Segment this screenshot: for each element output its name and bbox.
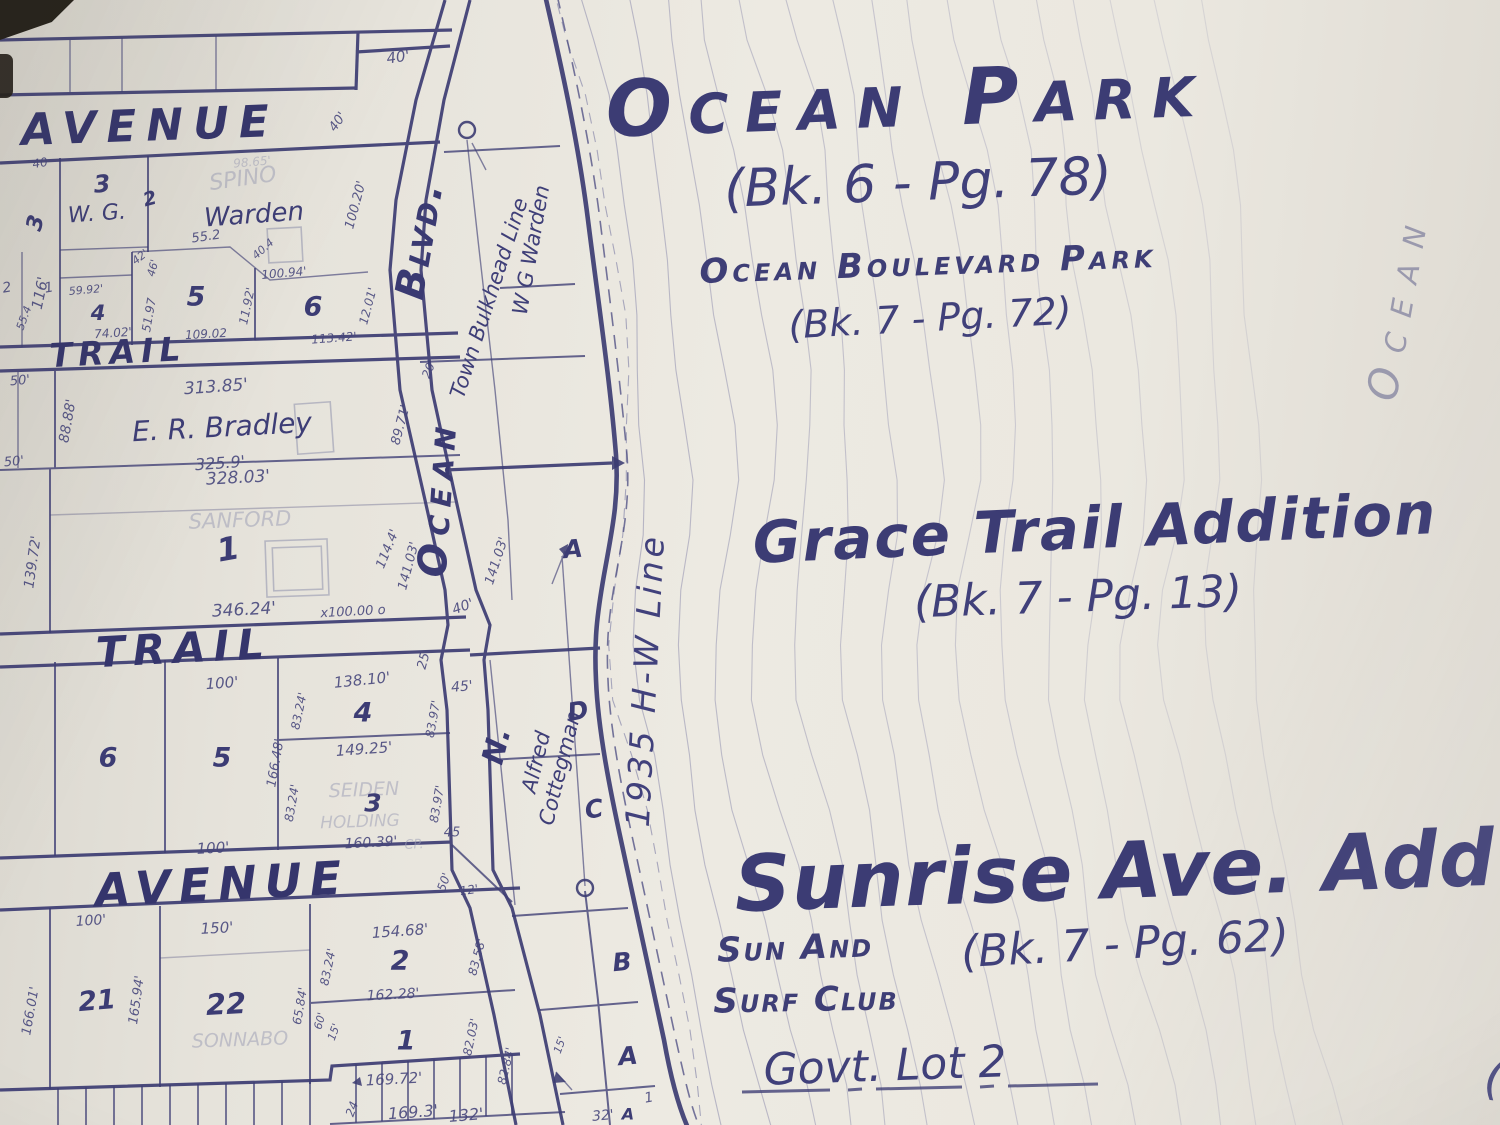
map-label-5: 5 — [187, 282, 206, 313]
map-label-12: 12' — [459, 882, 479, 898]
map-label-40: 40 — [31, 155, 48, 171]
map-label-b: B — [611, 947, 633, 978]
map-label-51-97: 51.97 — [139, 297, 159, 333]
map-label-100: 100' — [205, 673, 239, 693]
map-label-1: 1 — [397, 1026, 416, 1057]
map-label-e-r-bradley: E. R. Bradley — [131, 406, 312, 448]
map-label-113-42: 113.42' — [311, 329, 357, 346]
map-label-138-10: 138.10' — [333, 668, 391, 692]
map-label-24: 24 — [343, 1099, 361, 1118]
map-label-6: 6 — [99, 743, 118, 774]
map-label-169-72: 169.72' — [365, 1069, 422, 1090]
map-label-20: 20' — [419, 358, 439, 380]
map-label-3: 3 — [22, 212, 50, 233]
map-label-6: 6 — [304, 292, 323, 323]
map-label-mark: ( — [1481, 1049, 1500, 1107]
map-label-1: 1 — [214, 528, 243, 569]
map-label-45: 45' — [451, 678, 474, 696]
map-label-40-4: 40.4 — [250, 236, 277, 262]
map-label-1: 1 — [643, 1089, 655, 1106]
map-label-1: 1 — [43, 279, 55, 296]
map-label-25: 25 — [415, 651, 434, 671]
map-label-83-24: 83.24' — [317, 947, 339, 987]
map-label-166-01: 166.01' — [19, 986, 42, 1037]
map-label-55-4: 55.4 — [14, 304, 35, 331]
map-label-12-01: 12.01' — [356, 286, 379, 326]
map-label-65-84: 65.84' — [290, 986, 310, 1026]
map-label-bk-6-pg-78: (Bk. 6 - Pg. 78) — [723, 146, 1113, 220]
map-label-ocean: Ocean — [1357, 206, 1439, 405]
map-label-50: 50' — [9, 373, 30, 390]
map-label-45: 45 — [444, 826, 461, 841]
map-label-32: 32' — [592, 1107, 615, 1125]
map-label-83-58: 83.58' — [465, 937, 488, 977]
map-label-5: 5 — [213, 743, 232, 774]
map-label-50: 50' — [3, 454, 24, 471]
map-label-100: 100' — [75, 912, 107, 930]
map-label-55-2: 55.2 — [191, 228, 222, 247]
map-label-15: 15' — [325, 1022, 343, 1042]
map-label-328-03: 328.03' — [205, 466, 270, 489]
map-label-ocean-boulevard-park: Ocean Boulevard Park — [699, 236, 1157, 292]
map-label-40: 40' — [385, 46, 410, 67]
map-label-46: 46' — [145, 258, 162, 278]
map-label-100-20: 100.20' — [342, 179, 369, 230]
map-label-21: 21 — [77, 984, 117, 1018]
map-label-c: C — [583, 793, 605, 824]
map-label-141-03: 141.03' — [482, 535, 511, 586]
map-label-cp: CP. — [404, 837, 424, 853]
map-label-w-g: W. G. — [67, 200, 127, 229]
map-label-83-97: 83.97' — [423, 699, 443, 739]
map-label-132: 132' — [448, 1104, 484, 1125]
map-label-11-92: 11.92' — [236, 286, 258, 326]
map-label-109-02: 109.02 — [185, 326, 228, 342]
map-label-a: A — [622, 1105, 634, 1124]
map-label-150: 150' — [200, 918, 234, 938]
map-label-holding: HOLDING — [320, 811, 400, 834]
map-label-trail: TRAIL — [95, 619, 273, 677]
map-label-3: 3 — [92, 169, 111, 198]
map-label-149-25: 149.25' — [335, 738, 393, 760]
map-label-169-3: 169.3' — [387, 1101, 438, 1123]
map-label-govt-lot-2: Govt. Lot 2 — [763, 1036, 1008, 1095]
map-label-sunrise-ave-add: Sunrise Ave. Add — [733, 814, 1497, 931]
map-label-2: 2 — [391, 946, 410, 977]
map-label-139-72: 139.72' — [21, 535, 44, 590]
map-label-a: A — [562, 534, 584, 565]
map-label-165-94: 165.94' — [126, 975, 148, 1026]
map-label-bk-7-pg-72: (Bk. 7 - Pg. 72) — [787, 289, 1072, 348]
map-label-layer: Ocean Park(Bk. 6 - Pg. 78)Ocean Boulevar… — [0, 0, 1500, 1125]
map-label-bk-7-pg-13: (Bk. 7 - Pg. 13) — [913, 566, 1243, 628]
map-label-1935-h-w-line: 1935 H-W Line — [618, 532, 672, 828]
map-label-59-92: 59.92' — [68, 282, 104, 298]
map-label-4: 4 — [354, 698, 373, 729]
map-label-154-68: 154.68' — [371, 920, 429, 942]
map-label-surf-club: Surf Club — [713, 978, 899, 1021]
map-label-82-03: 82.03' — [460, 1017, 482, 1057]
map-label-60: 60' — [312, 1011, 329, 1031]
map-label-sun-and: Sun And — [716, 925, 874, 970]
map-label-40: 40' — [450, 596, 476, 618]
map-label-100: 100' — [196, 838, 230, 858]
map-label-166-48: 166.48' — [264, 738, 287, 789]
map-label-83-97: 83.97' — [427, 784, 447, 824]
map-label-160-39: 160.39' — [344, 834, 398, 853]
map-label-sanford: SANFORD — [188, 506, 292, 534]
map-label-d: D — [565, 695, 590, 727]
map-label-15: 15' — [551, 1035, 569, 1055]
map-label-114-4: 114.4' — [373, 527, 402, 570]
map-label-4: 4 — [91, 301, 106, 325]
map-label-82-84: 82.84' — [495, 1046, 518, 1086]
map-label-88-88: 88.88' — [56, 398, 79, 444]
map-label-50: 50' — [434, 871, 454, 893]
map-label-83-24: 83.24' — [282, 783, 302, 823]
map-label-83-24: 83.24' — [288, 691, 310, 731]
map-label-162-28: 162.28' — [366, 986, 420, 1005]
map-label-74-02: 74.02' — [94, 325, 133, 342]
photo-edge-mark — [0, 54, 13, 98]
map-label-blvd: Blvd. — [387, 177, 453, 303]
map-label-sonnabo: SONNABO — [191, 1027, 288, 1052]
map-label-avenue: AVENUE — [20, 96, 279, 156]
map-label-346-24: 346.24' — [211, 598, 276, 621]
map-label-89-71: 89.71' — [388, 403, 413, 446]
map-label-313-85: 313.85' — [183, 375, 248, 399]
map-label-100-94: 100.94' — [261, 264, 307, 282]
map-label-2: 2 — [1, 279, 13, 296]
map-label-x100-00-o: x100.00 o — [320, 603, 386, 621]
map-label-avenue: AVENUE — [93, 850, 350, 917]
map-label-n: N. — [476, 724, 519, 768]
map-label-2: 2 — [141, 187, 159, 212]
plat-map-photo: Ocean Park(Bk. 6 - Pg. 78)Ocean Boulevar… — [0, 0, 1500, 1125]
map-label-ocean-park: Ocean Park — [604, 44, 1211, 155]
map-label-grace-trail-addition: Grace Trail Addition — [751, 479, 1438, 577]
map-label-40: 40' — [326, 109, 350, 134]
map-label-22: 22 — [205, 986, 247, 1022]
map-label-a: A — [617, 1041, 639, 1072]
